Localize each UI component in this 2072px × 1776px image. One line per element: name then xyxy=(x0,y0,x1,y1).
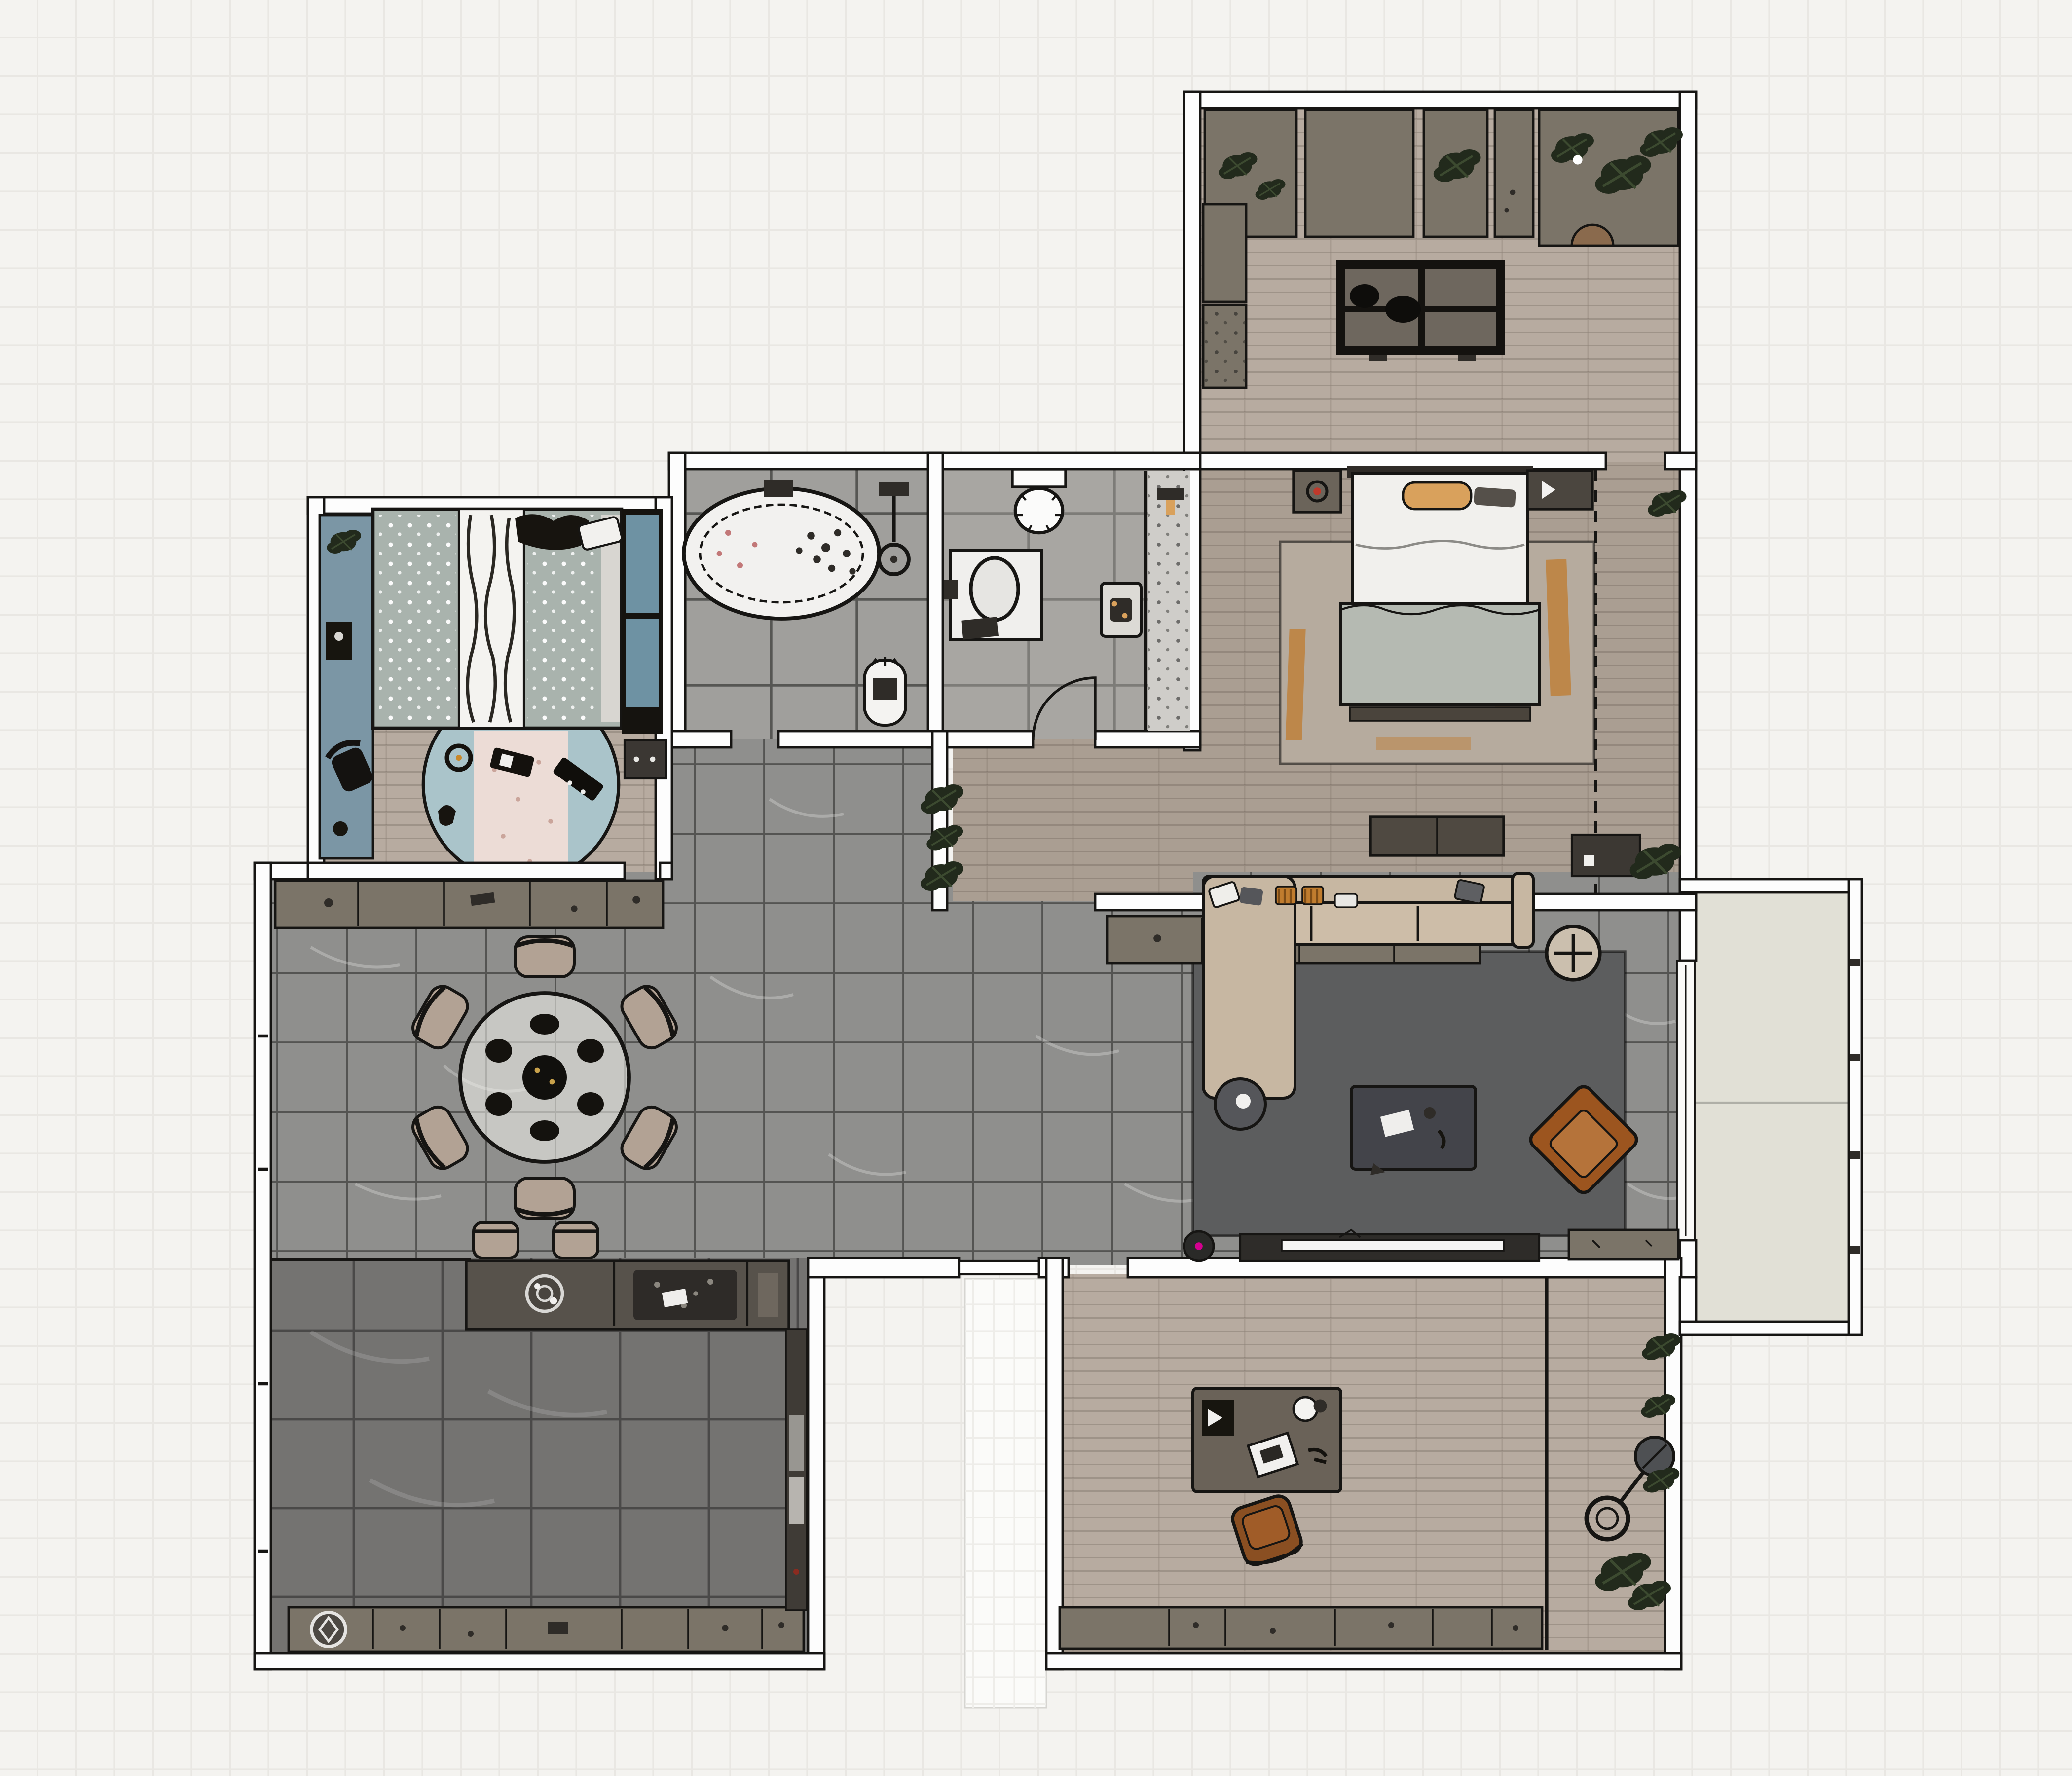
double-bed xyxy=(1341,466,1539,721)
toilet xyxy=(1012,469,1066,533)
office-cabinet-row xyxy=(1060,1607,1542,1649)
wall-segment xyxy=(808,1277,824,1669)
dining-chair xyxy=(515,937,574,977)
study-side-counter xyxy=(1203,204,1246,388)
bar-stool xyxy=(474,1222,518,1258)
bath-mat xyxy=(1101,583,1141,636)
washing-machine xyxy=(312,1613,346,1647)
tv xyxy=(1282,1240,1504,1251)
balcony-wall-top xyxy=(1680,879,1862,892)
wall-segment xyxy=(669,731,731,747)
entry-porch xyxy=(965,1279,1046,1708)
wall-segment xyxy=(1665,453,1696,469)
wall-segment xyxy=(928,453,943,747)
double-desk-island xyxy=(1336,260,1505,361)
lamp xyxy=(1313,487,1321,495)
sofa-arm xyxy=(1513,873,1533,947)
balcony-floor xyxy=(1687,888,1853,1326)
gray-pillow xyxy=(1474,487,1516,508)
coffee-table xyxy=(1351,1086,1476,1175)
media-cabinet xyxy=(1527,471,1592,509)
chaise xyxy=(1203,876,1295,1098)
vanity-sink xyxy=(944,551,1042,640)
wall-segment xyxy=(1046,1653,1681,1669)
robot-vacuum xyxy=(1184,1231,1214,1261)
glass-shower-area xyxy=(1146,471,1190,731)
desk-chair xyxy=(1385,296,1421,323)
balcony-railing xyxy=(1849,879,1862,1335)
low-cabinet-right xyxy=(1569,1230,1678,1259)
wall-segment xyxy=(808,1258,959,1277)
cooktop xyxy=(633,1270,737,1320)
round-sink xyxy=(527,1276,562,1311)
sage-blanket xyxy=(1341,604,1539,704)
wall-segment xyxy=(255,1653,824,1669)
desk-chair xyxy=(1350,284,1379,308)
wall-segment xyxy=(308,863,625,879)
tv-console xyxy=(1240,1230,1539,1261)
teal-desk-strip xyxy=(320,515,376,858)
floor-plan-svg xyxy=(0,0,2072,1776)
round-tray-table xyxy=(1547,926,1600,980)
floor-plan-canvas xyxy=(0,0,2072,1776)
tub-faucet xyxy=(764,480,793,497)
wall-segment xyxy=(660,863,672,879)
home-office-floor xyxy=(1055,1274,1669,1653)
base-cabinet-row xyxy=(289,1607,804,1652)
wall-segment xyxy=(778,731,1033,747)
office-desk xyxy=(1193,1388,1341,1492)
wall-segment xyxy=(1095,731,1200,747)
dining-chair xyxy=(515,1178,574,1218)
tall-unit-column xyxy=(786,1329,807,1610)
bar-counter xyxy=(466,1261,789,1329)
wall-segment xyxy=(1680,910,1696,961)
pillows xyxy=(515,514,623,550)
storage-bench xyxy=(1572,835,1640,876)
wall-segment xyxy=(1184,92,1696,108)
front-door xyxy=(959,1261,1039,1274)
vestibule-floor xyxy=(953,739,1193,901)
water-heater xyxy=(864,657,906,725)
nightstand xyxy=(1294,471,1341,512)
wall-segment xyxy=(255,863,271,1669)
desk-lamp xyxy=(1294,1397,1317,1421)
study-wall-counter xyxy=(1205,110,1683,246)
low-cabinet xyxy=(625,740,666,778)
wardrobe xyxy=(622,509,663,734)
round-side-table xyxy=(1215,1079,1265,1129)
balcony-wall-bottom xyxy=(1680,1322,1862,1335)
foot-bench xyxy=(1350,707,1530,721)
single-bed xyxy=(373,509,623,728)
dining-sideboard xyxy=(275,881,663,928)
bar-stool xyxy=(554,1222,598,1258)
tan-pillow xyxy=(1403,482,1471,509)
